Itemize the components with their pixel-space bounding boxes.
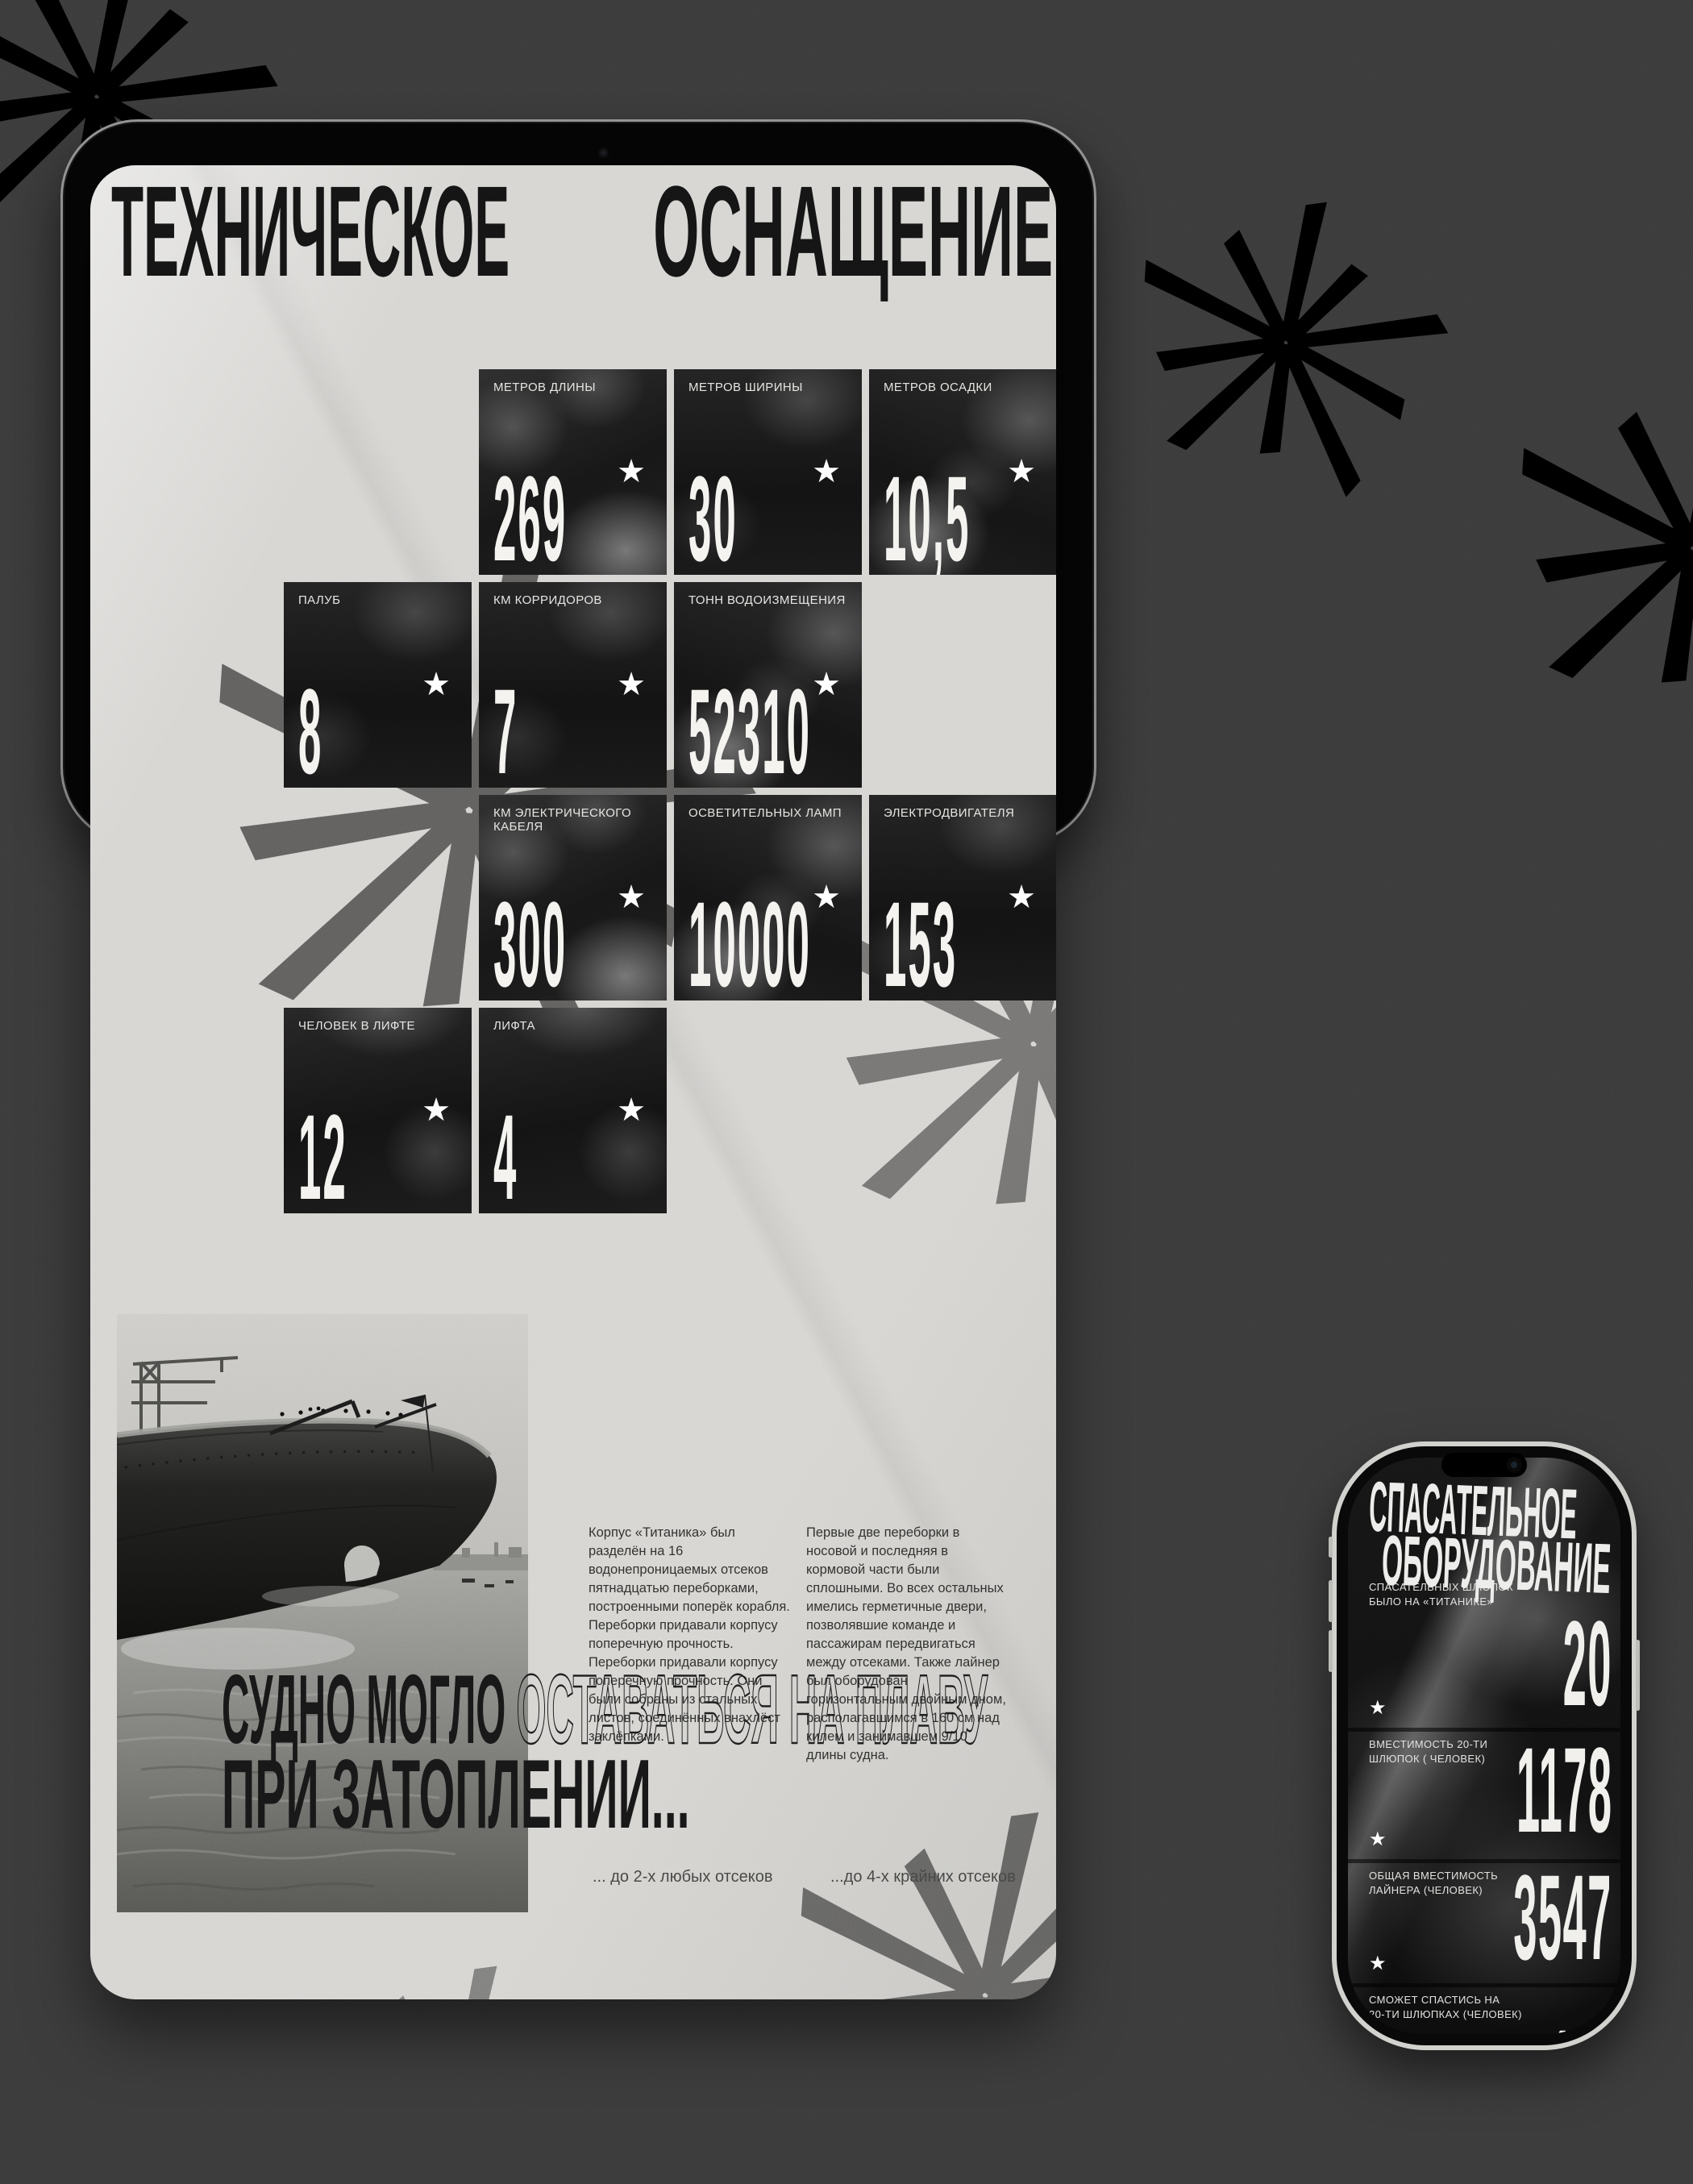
phone-stat: ОБЩАЯ ВМЕСТИМОСТЬ ЛАЙНЕРА (ЧЕЛОВЕК) 3547… <box>1348 1862 1620 1983</box>
phone-stat-value: 1178 <box>1516 1745 1612 1836</box>
stat-card-value: 269 <box>493 473 567 564</box>
star-icon: ★ <box>422 1094 451 1126</box>
phone-stat-label: ВМЕСТИМОСТЬ 20-ТИ ШЛЮПОК ( ЧЕЛОВЕК) <box>1369 1737 1487 1766</box>
design-presentation-canvas: ТЕХНИЧЕСКОЕ ОСНАЩЕНИЕ МЕТРОВ ДЛИНЫ ★ 269… <box>0 0 1693 2184</box>
stat-card: ТОНН ВОДОИЗМЕЩЕНИЯ ★ 52310 <box>674 582 862 788</box>
stat-card: ОСВЕТИТЕЛЬНЫХ ЛАМП ★ 10000 <box>674 795 862 1000</box>
stat-card-label: МЕТРОВ ДЛИНЫ <box>493 381 596 394</box>
phone-stat: ВМЕСТИМОСТЬ 20-ТИ ШЛЮПОК ( ЧЕЛОВЕК) 1178… <box>1348 1731 1620 1859</box>
stat-card-label: ЭЛЕКТРОДВИГАТЕЛЯ <box>884 806 1014 820</box>
stat-card-value: 30 <box>688 473 738 564</box>
front-camera-icon <box>600 149 607 156</box>
page-title-right: ОСНАЩЕНИЕ <box>184 167 1053 296</box>
stat-card-label: ТОНН ВОДОИЗМЕЩЕНИЯ <box>688 593 846 607</box>
tablet-page-panel: ТЕХНИЧЕСКОЕ ОСНАЩЕНИЕ МЕТРОВ ДЛИНЫ ★ 269… <box>90 165 1056 1999</box>
caption-right: ...до 4-х крайних отсеков <box>830 1868 1016 1887</box>
star-icon: ★ <box>1007 456 1036 488</box>
volume-up-button <box>1329 1580 1333 1622</box>
star-icon: ★ <box>617 1094 646 1126</box>
phone-stat-value: 1/3 <box>1550 2027 1612 2035</box>
star-icon: ★ <box>1369 1954 1387 1974</box>
phone-device-frame: СПАСАТЕЛЬНОЕ ОБОРУДОВАНИЕ СПАСАТЕЛЬНЫХ Ш… <box>1332 1441 1637 2050</box>
star-icon: ★ <box>617 668 646 701</box>
phone-body: СПАСАТЕЛЬНОЕ ОБОРУДОВАНИЕ СПАСАТЕЛЬНЫХ Ш… <box>1337 1446 1632 2045</box>
stat-card-label: ЧЕЛОВЕК В ЛИФТЕ <box>298 1019 415 1033</box>
stat-card: МЕТРОВ ДЛИНЫ ★ 269 <box>479 369 667 575</box>
star-icon: ★ <box>1369 1830 1387 1849</box>
stat-card-label: ОСВЕТИТЕЛЬНЫХ ЛАМП <box>688 806 842 820</box>
thorn-icon <box>268 1931 639 1999</box>
star-icon: ★ <box>812 456 841 488</box>
stat-card-value: 300 <box>493 899 567 990</box>
stat-card-value: 12 <box>298 1112 347 1203</box>
stat-card: МЕТРОВ ШИРИНЫ ★ 30 <box>674 369 862 575</box>
power-button <box>1636 1640 1640 1711</box>
phone-stat: СМОЖЕТ СПАСТИСЬ НА 20-ТИ ШЛЮПКАХ (ЧЕЛОВЕ… <box>1348 1986 1620 2034</box>
stat-card-value: 4 <box>493 1112 518 1203</box>
stat-card: КМ КОРРИДОРОВ ★ 7 <box>479 582 667 788</box>
stat-card-value: 8 <box>298 686 322 777</box>
thorn-icon <box>1483 339 1693 758</box>
star-icon: ★ <box>422 668 451 701</box>
stat-card-label: МЕТРОВ ОСАДКИ <box>884 381 992 394</box>
stat-card-value: 52310 <box>688 686 811 777</box>
star-icon: ★ <box>812 668 841 701</box>
star-icon: ★ <box>617 881 646 913</box>
volume-down-button <box>1329 1630 1333 1672</box>
stat-card-value: 7 <box>493 686 518 777</box>
dynamic-island <box>1441 1453 1527 1477</box>
stat-card: ЧЕЛОВЕК В ЛИФТЕ ★ 12 <box>284 1008 472 1213</box>
stat-card: ЛИФТА ★ 4 <box>479 1008 667 1213</box>
stat-card-value: 10,5 <box>884 473 970 564</box>
stat-card-label: ПАЛУБ <box>298 593 340 607</box>
star-icon: ★ <box>1369 1699 1387 1718</box>
stat-card: ПАЛУБ ★ 8 <box>284 582 472 788</box>
star-icon: ★ <box>1007 881 1036 913</box>
stat-card-label: ЛИФТА <box>493 1019 535 1033</box>
stat-card: ЭЛЕКТРОДВИГАТЕЛЯ ★ 153 <box>869 795 1056 1000</box>
stat-card-label: КМ ЭЛЕКТРИЧЕСКОГО КАБЕЛЯ <box>493 806 667 834</box>
headline-line-2: ПРИ ЗАТОПЛЕНИИ... <box>222 1745 1056 1843</box>
front-camera-icon <box>1506 1457 1522 1473</box>
phone-stat-value: 20 <box>1563 1618 1612 1709</box>
phone-stat-value: 3547 <box>1514 1872 1612 1963</box>
phone-stat-label: СМОЖЕТ СПАСТИСЬ НА 20-ТИ ШЛЮПКАХ (ЧЕЛОВЕ… <box>1369 1993 1522 2021</box>
stat-card-value: 153 <box>884 899 957 990</box>
thorn-icon <box>1113 169 1459 516</box>
stat-card-label: МЕТРОВ ШИРИНЫ <box>688 381 803 394</box>
stat-card: КМ ЭЛЕКТРИЧЕСКОГО КАБЕЛЯ ★ 300 <box>479 795 667 1000</box>
stat-card-value: 10000 <box>688 899 811 990</box>
stat-card-label: КМ КОРРИДОРОВ <box>493 593 602 607</box>
phone-stat-label: ОБЩАЯ ВМЕСТИМОСТЬ ЛАЙНЕРА (ЧЕЛОВЕК) <box>1369 1869 1498 1897</box>
mute-switch <box>1329 1537 1333 1558</box>
stat-card: МЕТРОВ ОСАДКИ ★ 10,5 <box>869 369 1056 575</box>
phone-screen: СПАСАТЕЛЬНОЕ ОБОРУДОВАНИЕ СПАСАТЕЛЬНЫХ Ш… <box>1348 1458 1620 2034</box>
star-icon: ★ <box>812 881 841 913</box>
caption-left: ... до 2-х любых отсеков <box>593 1868 772 1887</box>
star-icon: ★ <box>617 456 646 488</box>
